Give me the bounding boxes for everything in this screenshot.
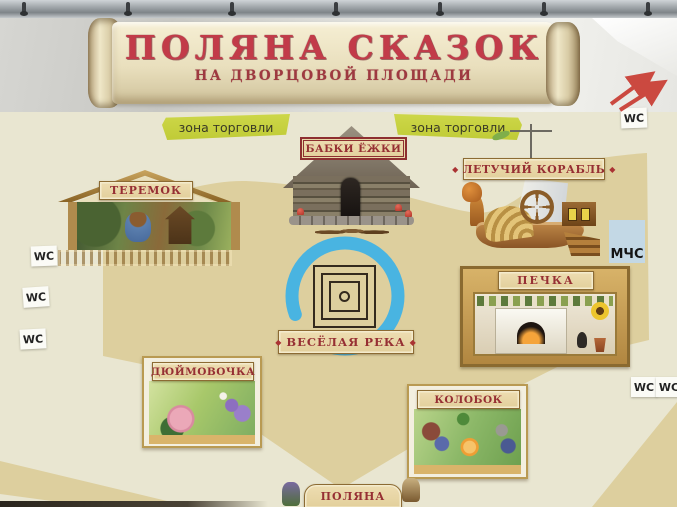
ship-horse-head: [462, 182, 482, 202]
photo-bottom-edge-shadow: [0, 501, 268, 507]
stove-body: [495, 308, 567, 354]
flower-pot: [593, 338, 607, 352]
wc-label: WC: [631, 377, 657, 397]
scroll-parchment: ПОЛЯНА СКАЗОК НА ДВОРЦОВОЙ ПЛОЩАДИ: [112, 22, 556, 104]
fairy-tale-glade-map-board: ПОЛЯНА СКАЗОК НА ДВОРЦОВОЙ ПЛОЩАДИ зона …: [0, 0, 677, 507]
wc-label: WC: [31, 246, 58, 267]
rail-hook-icon: [438, 2, 442, 13]
card-ornament-band: [414, 465, 521, 474]
wc-label: WC: [22, 286, 49, 308]
tower-house-figure: [165, 206, 195, 244]
ship-flag: [491, 129, 510, 141]
attraction-letuchiy-korabl: ЛЕТУЧИЙ КОРАБЛЬ: [458, 124, 606, 256]
card-ornament-band: [149, 435, 255, 444]
rail-hook-icon: [22, 2, 26, 13]
maze-squares: [313, 265, 377, 329]
attraction-label-teremok: ТЕРЕМОК: [99, 181, 193, 200]
stove-mouth-fire: [517, 322, 545, 344]
mchs-label: МЧС: [609, 220, 645, 263]
pechka-artwork: [473, 292, 617, 356]
title-scroll: ПОЛЯНА СКАЗОК НА ДВОРЦОВОЙ ПЛОЩАДИ: [88, 14, 580, 112]
attraction-label-kolobok: КОЛОБОК: [417, 390, 520, 409]
ship-steering-wheel-icon: [520, 190, 554, 224]
bear-figure: [125, 212, 151, 242]
cabin-window: [568, 208, 577, 221]
hut-stone-base: [289, 216, 414, 225]
rail-hook-icon: [334, 2, 338, 13]
attraction-label-dyuymovochka: ДЮЙМОВОЧКА: [152, 362, 254, 381]
ship-yard: [510, 130, 552, 132]
ship-cabin: [562, 202, 596, 226]
attraction-pechka: ПЕЧКА: [460, 266, 630, 367]
attraction-kolobok: КОЛОБОК: [407, 384, 528, 479]
attraction-label-veselaya-reka: ВЕСЁЛАЯ РЕКА: [278, 330, 414, 354]
wc-label: WC: [19, 328, 46, 349]
sunflower-icon: [591, 302, 609, 320]
attraction-label-pechka: ПЕЧКА: [498, 271, 594, 290]
rail-hook-icon: [126, 2, 130, 13]
mushroom-icon: [395, 204, 402, 211]
scroll-roll-right: [546, 22, 580, 106]
cat-figure: [577, 332, 587, 348]
kolobok-artwork: [414, 409, 521, 465]
attraction-teremok: ТЕРЕМОК: [62, 170, 228, 268]
attraction-polyana-entrance: ПОЛЯНА: [282, 478, 422, 507]
teremok-base-ornament: [58, 250, 232, 266]
mushroom-icon: [297, 208, 304, 215]
attraction-dyuymovochka: ДЮЙМОВОЧКА: [142, 356, 262, 448]
attraction-label-babki-ezhki: БАБКИ ЁЖКИ: [300, 137, 407, 160]
attraction-label-letuchiy-korabl: ЛЕТУЧИЙ КОРАБЛЬ: [463, 158, 605, 180]
dyuymovochka-artwork: [149, 381, 255, 435]
direction-arrows-icon: [603, 60, 677, 112]
maze-center-circle: [339, 291, 350, 302]
entrance-figure-left: [282, 482, 300, 506]
attraction-label-polyana: ПОЛЯНА: [304, 484, 402, 507]
ship-stairs: [564, 232, 600, 256]
page-subtitle: НА ДВОРЦОВОЙ ПЛОЩАДИ: [195, 68, 474, 84]
rail-hook-icon: [230, 2, 234, 13]
rail-hook-icon: [646, 2, 650, 13]
wc-label: WC: [656, 377, 677, 397]
attraction-babki-ezhki: БАБКИ ЁЖКИ: [283, 126, 420, 238]
mushroom-icon: [405, 210, 412, 217]
hut-door: [341, 178, 360, 218]
entrance-figure-right: [402, 478, 420, 502]
page-title: ПОЛЯНА СКАЗОК: [125, 31, 543, 65]
teremok-artwork: [68, 202, 240, 250]
cabin-window: [581, 208, 590, 221]
rail-hook-icon: [542, 2, 546, 13]
